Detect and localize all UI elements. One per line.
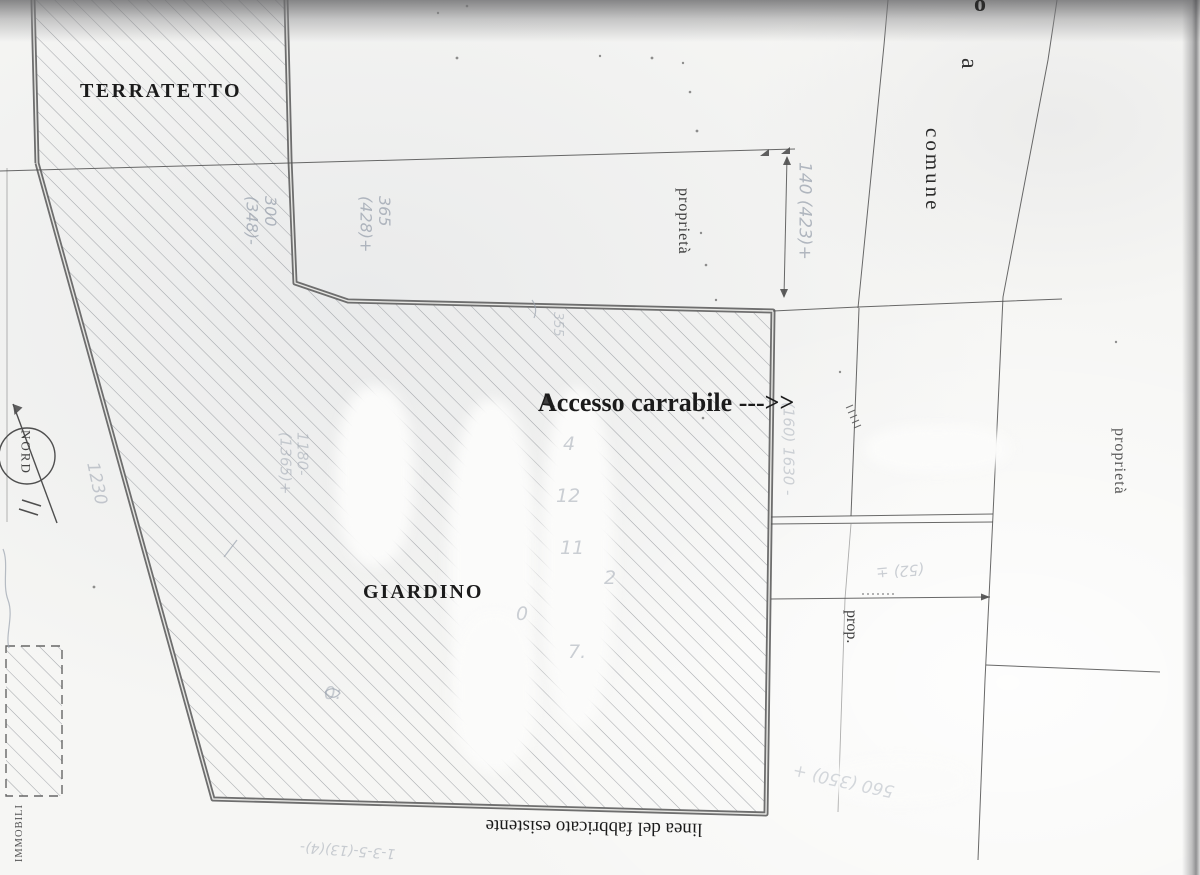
garden-digit: 2 <box>604 568 616 590</box>
scanned-site-plan: 300 (348)- 365 (428)+ 140 (423)+ (160) 1… <box>0 0 1200 875</box>
label-immobili: IMMOBILI <box>14 804 25 862</box>
path-strip-top <box>771 514 993 517</box>
garden-digit: 7. <box>568 642 586 664</box>
label-prop: prop. <box>842 610 859 643</box>
label-proprieta-left: proprietà <box>674 188 691 255</box>
compass-nord-label: NORD <box>19 430 33 475</box>
garden-digit: 0 <box>516 604 528 626</box>
label-proprieta-right: proprietà <box>1110 428 1127 495</box>
label-partial-letter: o <box>974 0 986 18</box>
boundary-line-prop <box>771 597 990 599</box>
boundary-line-ne <box>858 0 888 308</box>
dimension-note-355: 355 <box>549 312 564 337</box>
whiteout-streak <box>452 612 536 772</box>
garden-digit: 0: <box>324 684 342 705</box>
boundary-line-se <box>986 665 1160 672</box>
label-comune: comune <box>922 128 944 212</box>
whiteout-streak <box>336 386 414 566</box>
dimension-note-365: 365 (428)+ <box>356 196 393 252</box>
label-linea-fabbricato: linea del fabbricato esistente <box>462 814 726 841</box>
compass-arrowhead-icon <box>13 404 23 415</box>
label-accesso-carrabile: Accesso carrabile --->> <box>538 388 794 418</box>
dimension-line-140 <box>784 157 787 297</box>
whiteout-streak <box>865 425 1010 473</box>
boundary-line-mid <box>773 299 1062 311</box>
divider-line-upper <box>851 308 859 516</box>
label-terratetto: TERRATETTO <box>80 80 242 103</box>
dimension-note-1180: 1180- (1365)+ <box>276 432 311 494</box>
dimension-note-300: 300 (348)- <box>242 196 279 245</box>
dimension-note-140: 140 (423)+ <box>794 162 814 260</box>
garden-digit: 11 <box>560 538 584 560</box>
dimension-note-52: (52) ± <box>875 560 924 581</box>
label-a-marker: a <box>956 58 981 69</box>
path-strip-bottom <box>771 522 993 524</box>
label-giardino: GIARDINO <box>363 581 483 604</box>
garden-digit: 4 <box>563 434 575 456</box>
garden-digit: 12 <box>556 486 580 508</box>
legend-hatch-swatch <box>6 646 62 796</box>
